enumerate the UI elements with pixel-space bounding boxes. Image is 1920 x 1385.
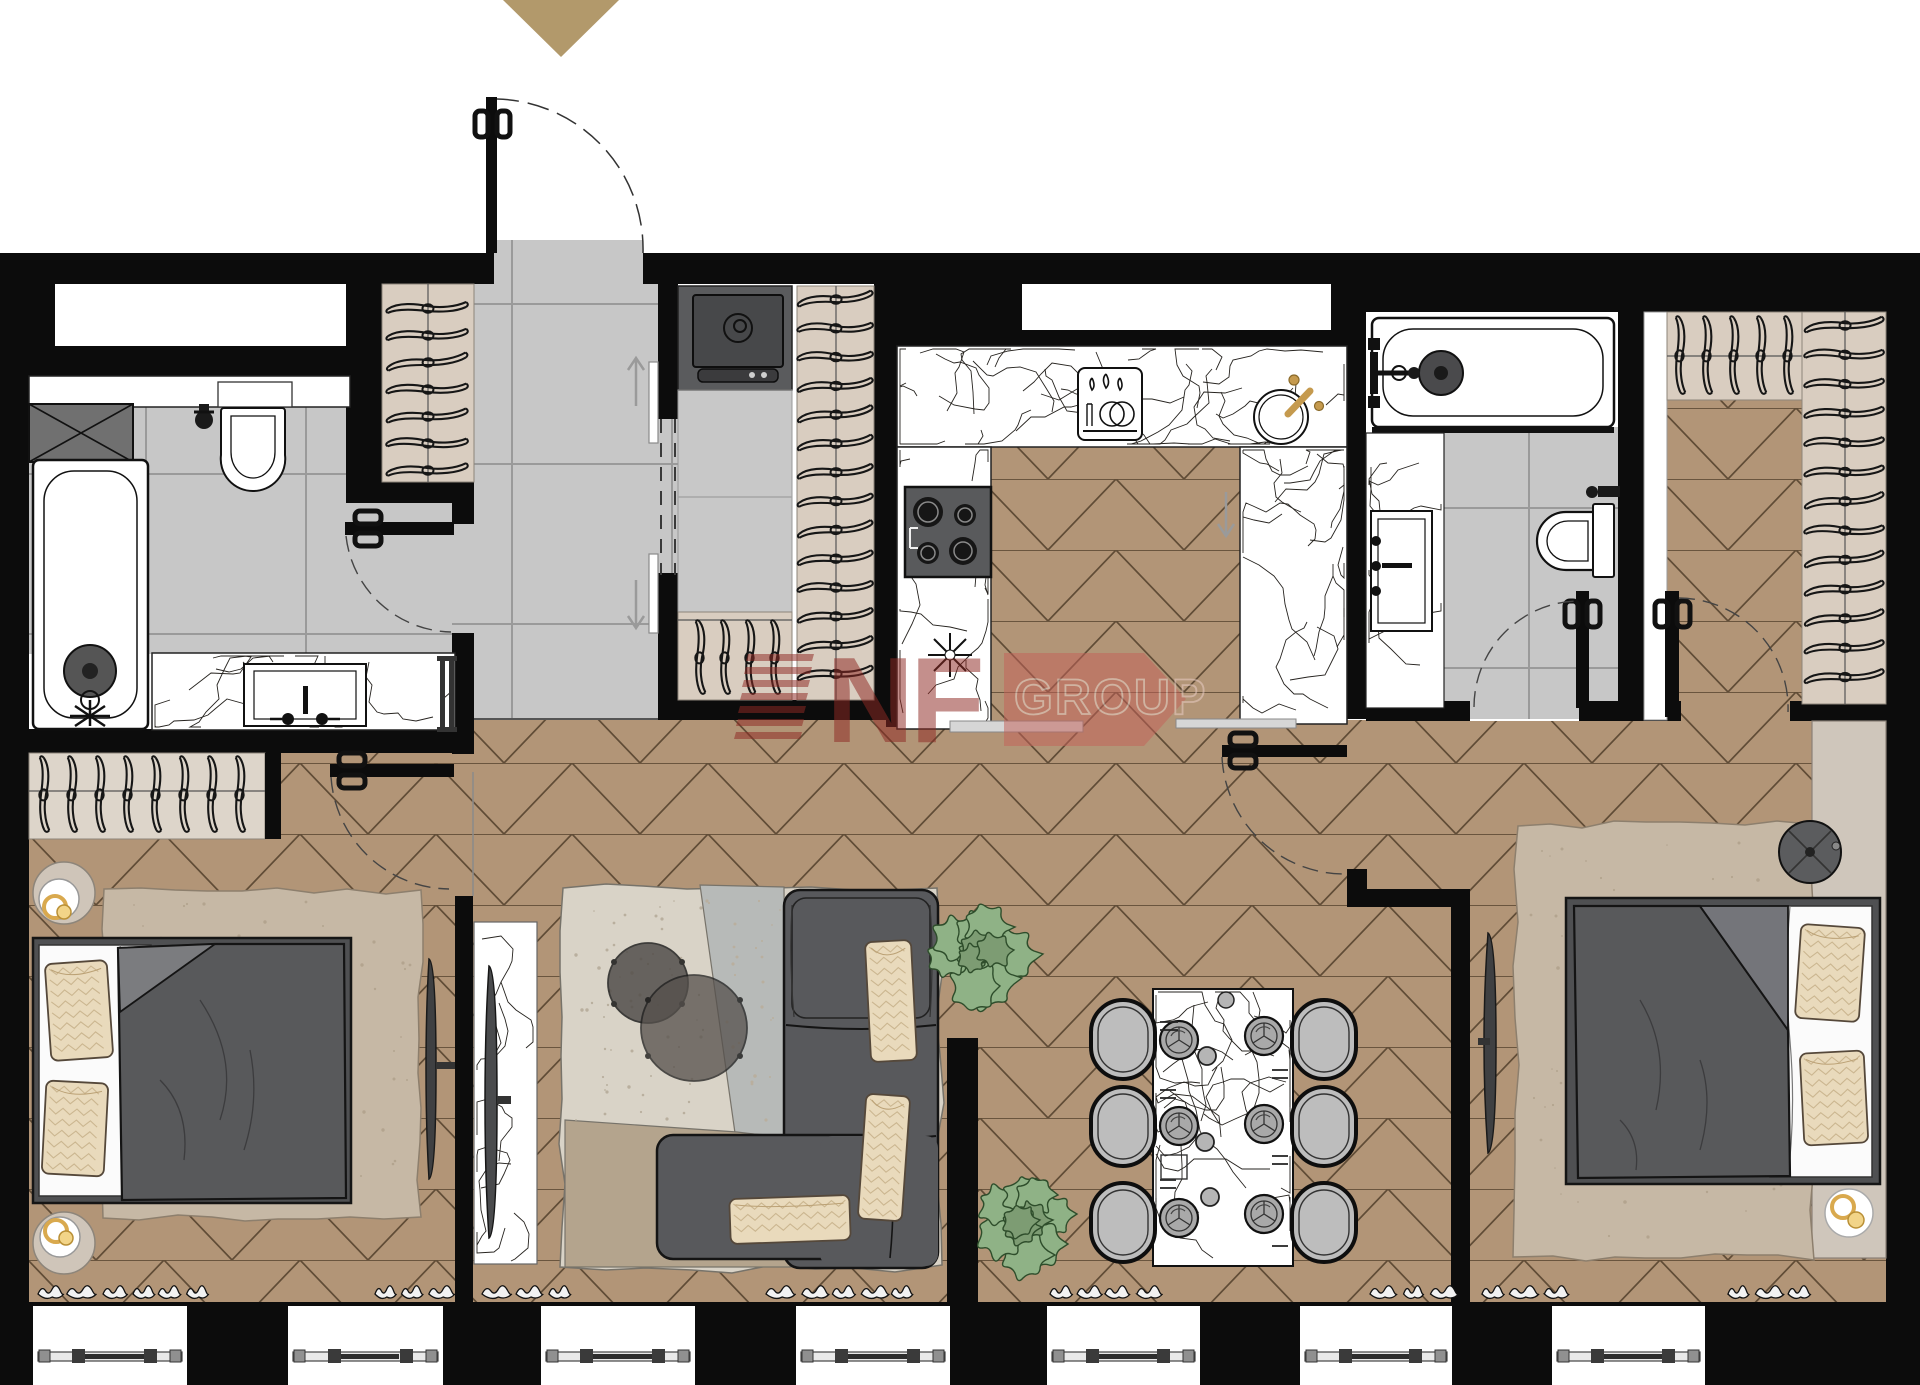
svg-text:GROUP: GROUP	[1014, 669, 1207, 725]
svg-text:NF: NF	[826, 632, 981, 768]
